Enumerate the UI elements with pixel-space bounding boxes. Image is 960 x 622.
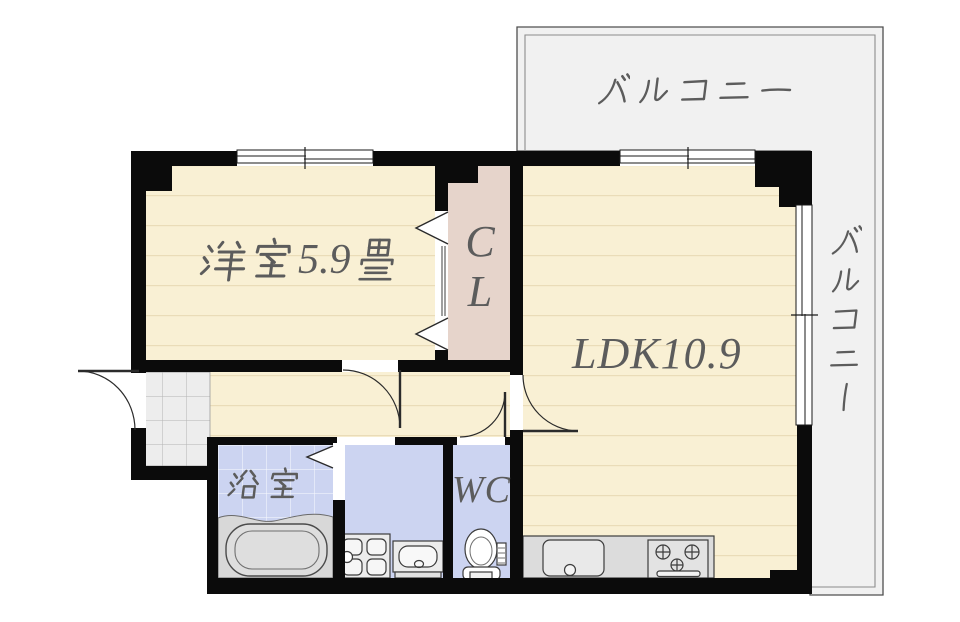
toilet-control-panel xyxy=(497,543,506,565)
kana-chouon-vertical xyxy=(828,380,862,414)
closet-label-line1: C xyxy=(465,222,494,262)
entrance-door xyxy=(78,371,139,430)
kana-ko xyxy=(828,302,862,336)
closet-label-line2: L xyxy=(468,272,492,312)
kanji-jou xyxy=(353,236,401,284)
bathroom-label xyxy=(226,466,302,503)
ldk-label: LDK10.9 xyxy=(572,328,742,379)
closet-label: C L xyxy=(458,222,502,313)
bathtub xyxy=(218,514,333,578)
kana-ko xyxy=(676,72,712,108)
balcony-right-label xyxy=(828,224,862,414)
kitchen-counter xyxy=(523,536,714,578)
entrance-tile-floor xyxy=(138,372,210,466)
western-room-size-number: 5.9 xyxy=(298,236,351,284)
kana-ru xyxy=(828,263,862,297)
washing-machine-pan xyxy=(338,534,390,578)
western-room-label: 5.9 xyxy=(198,236,401,284)
ldk-top-window xyxy=(620,147,755,169)
balcony-top-label xyxy=(594,72,794,108)
kitchen-sink xyxy=(543,540,604,576)
toilet-room-label: WC xyxy=(452,468,511,512)
kana-ru xyxy=(635,72,671,108)
floor-plan: 5.9 C L LDK10.9 WC xyxy=(0,0,960,622)
hallway-floor xyxy=(210,372,510,437)
kana-ba xyxy=(828,224,862,258)
kana-chouon xyxy=(758,72,794,108)
wash-basin xyxy=(393,541,443,578)
kanji-shitsu xyxy=(265,466,302,503)
kanji-yoku xyxy=(226,466,263,503)
kana-ni xyxy=(828,341,862,375)
kanji-shitsu xyxy=(248,236,296,284)
western-room-window xyxy=(237,147,373,169)
gas-stove xyxy=(648,540,708,578)
kana-ni xyxy=(717,72,753,108)
kana-ba xyxy=(594,72,630,108)
kanji-you xyxy=(198,236,246,284)
